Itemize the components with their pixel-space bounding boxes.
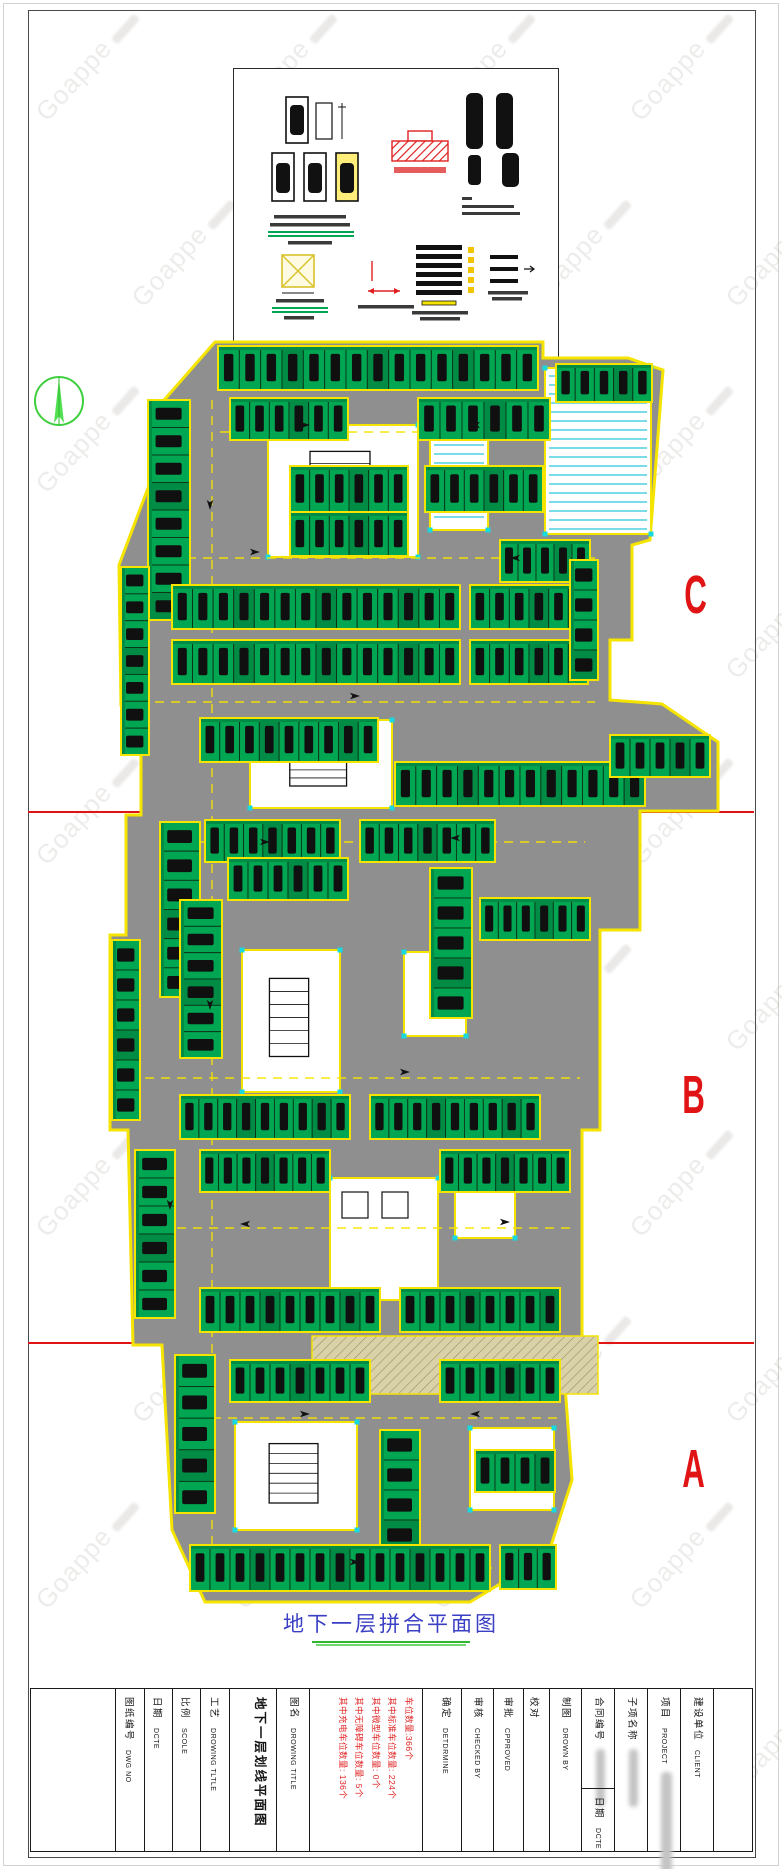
- parking-stall-strip: [205, 820, 340, 862]
- titleblock-col-empty: [713, 1689, 752, 1851]
- zone-label-a: A: [682, 1442, 705, 1496]
- label-cn: 日期: [151, 1697, 162, 1719]
- plan-room: [233, 1420, 360, 1533]
- parking-stall-strip: [475, 1450, 555, 1492]
- parking-stall-strip: [556, 364, 652, 402]
- sheet-title-underline-2: [316, 1644, 466, 1646]
- titleblock-col-text: 项目PROJECT: [646, 1689, 680, 1847]
- plan-room: [240, 948, 343, 1095]
- titleblock-col-text: 地下一层划线平面图: [228, 1689, 276, 1847]
- label-cn: 工艺: [208, 1697, 219, 1719]
- label-cn: 审批: [502, 1697, 513, 1719]
- label-cn: 制图: [560, 1697, 571, 1719]
- titleblock-col-text: 制图DROWN BY: [548, 1689, 581, 1847]
- parking-stall-strip: [570, 560, 598, 680]
- parking-stall-strip: [180, 900, 222, 1058]
- parking-stall-strip: [380, 1430, 420, 1550]
- label-en: DROWING TLTLE: [209, 1728, 216, 1791]
- label-en: DROWING TITLE: [289, 1728, 296, 1790]
- parking-stall-strip: [230, 1360, 370, 1402]
- parking-stall-strip: [500, 1545, 556, 1589]
- parking-stats-line: 其中微型车位数量: 0个: [367, 1697, 384, 1847]
- label-en: DWG NO: [124, 1750, 131, 1783]
- parking-stats-line: 其中充电车位数量: 136个: [334, 1697, 351, 1847]
- titleblock-col-text: 子项名称: [613, 1689, 647, 1847]
- label-en: DCTE: [152, 1728, 159, 1749]
- titleblock-col-text: 图纸编号DWG NO: [114, 1689, 144, 1847]
- label-en: DROWN BY: [561, 1728, 568, 1771]
- sheet-title-underline: [312, 1641, 470, 1643]
- parking-stall-strip: [430, 868, 472, 1018]
- parking-stall-strip: [440, 1360, 560, 1402]
- parking-stall-strip: [121, 567, 149, 755]
- parking-stall-strip: [400, 1288, 560, 1332]
- parking-stall-strip: [112, 940, 140, 1120]
- parking-stall-strip: [370, 1095, 540, 1139]
- parking-stall-strip: [218, 346, 538, 390]
- parking-stall-strip: [440, 1150, 570, 1192]
- parking-stall-strip: [180, 1095, 350, 1139]
- titleblock-col-text: 审批CPPROVED: [493, 1689, 523, 1847]
- titleblock-col-text: 车位数量:366个其中标准车位数量: 224个其中微型车位数量: 0个其中无障碍…: [304, 1689, 422, 1847]
- titleblock-col-text: 比例SCOLE: [172, 1689, 200, 1847]
- title-block: 图纸编号DWG NO日期DCTE比例SCOLE工艺DROWING TLTLE地下…: [30, 1688, 753, 1852]
- titleblock-col-制图: 制图DROWN BY: [549, 1689, 581, 1851]
- redacted-value: [629, 1749, 638, 1807]
- parking-stall-strip: [172, 585, 460, 629]
- parking-stall-strip: [135, 1150, 175, 1318]
- titleblock-subcell-text: 日期DCTE: [581, 1789, 614, 1847]
- titleblock-col-子项名称: 子项名称: [614, 1689, 647, 1851]
- parking-stall-strip: [200, 1288, 380, 1332]
- label-en: CPPROVED: [503, 1728, 510, 1771]
- parking-stall-strip: [290, 466, 408, 512]
- label-cn: 审核: [472, 1697, 483, 1719]
- titleblock-col-empty: [31, 1689, 115, 1851]
- label-cn: 地下一层划线平面图: [253, 1697, 267, 1828]
- titleblock-col-审核: 审核CHECKED BY: [461, 1689, 493, 1851]
- titleblock-col-text: 校对: [523, 1689, 549, 1847]
- titleblock-col-地下一层划线平面图: 地下一层划线平面图: [229, 1689, 276, 1851]
- sheet-title-text: 地下一层拼合平面图: [283, 1608, 499, 1640]
- titleblock-col-text: 日期DCTE: [144, 1689, 172, 1847]
- parking-stats-line: 车位数量:366个: [400, 1697, 417, 1847]
- titleblock-col-合同编号: 合同编号日期DCTE: [581, 1689, 613, 1851]
- parking-stats-line: 其中无障碍车位数量: 5个: [351, 1697, 368, 1847]
- titleblock-col-stats: 车位数量:366个其中标准车位数量: 224个其中微型车位数量: 0个其中无障碍…: [309, 1689, 422, 1851]
- parking-stall-strip: [175, 1355, 215, 1513]
- label-en: CHECKED BY: [473, 1728, 480, 1779]
- parking-floor-plan: [0, 0, 782, 1869]
- label-cn: 校对: [528, 1697, 539, 1719]
- titleblock-col-审批: 审批CPPROVED: [493, 1689, 523, 1851]
- parking-stall-strip: [200, 718, 378, 762]
- plan-room: [328, 1176, 441, 1303]
- parking-stall-strip: [418, 398, 550, 440]
- titleblock-col-图纸编号: 图纸编号DWG NO: [115, 1689, 145, 1851]
- parking-stall-strip: [190, 1545, 490, 1591]
- label-cn: 图名: [288, 1697, 299, 1719]
- label-en: SCOLE: [180, 1728, 187, 1754]
- parking-stall-strip: [230, 398, 348, 440]
- label-en: PROJECT: [660, 1728, 667, 1764]
- label-cn: 比例: [179, 1697, 190, 1719]
- label-cn: 图纸编号: [123, 1697, 134, 1741]
- titleblock-col-text: 确定DETDRMINE: [421, 1689, 461, 1847]
- parking-stats-line: 其中标准车位数量: 224个: [384, 1697, 401, 1847]
- label-en: DETDRMINE: [441, 1728, 448, 1774]
- titleblock-col-校对: 校对: [523, 1689, 549, 1851]
- titleblock-subcell: 日期DCTE: [582, 1788, 613, 1851]
- zone-label-b: B: [682, 1068, 705, 1122]
- label-cn: 子项名称: [626, 1697, 637, 1741]
- sheet-title: 地下一层拼合平面图: [0, 1608, 782, 1646]
- label-cn: 建设单位: [692, 1697, 703, 1741]
- parking-stall-strip: [290, 512, 408, 556]
- label-cn: 日期: [593, 1797, 604, 1819]
- parking-stall-strip: [228, 858, 348, 900]
- label-en: CLIENT: [693, 1750, 700, 1778]
- parking-stall-strip: [425, 466, 543, 512]
- titleblock-col-日期: 日期DCTE: [144, 1689, 172, 1851]
- redacted-value: [661, 1772, 672, 1869]
- titleblock-col-text: 审核CHECKED BY: [460, 1689, 493, 1847]
- titleblock-col-text: 建设单位CLIENT: [680, 1689, 713, 1847]
- drawing-sheet: GoappeGoappeGoappeGoappeGoappeGoappeGoap…: [0, 0, 782, 1869]
- titleblock-col-工艺: 工艺DROWING TLTLE: [200, 1689, 230, 1851]
- label-cn: 确定: [440, 1697, 451, 1719]
- label-cn: 项目: [659, 1697, 670, 1719]
- titleblock-col-text: 工艺DROWING TLTLE: [199, 1689, 229, 1847]
- titleblock-col-比例: 比例SCOLE: [172, 1689, 200, 1851]
- parking-stall-strip: [172, 640, 460, 684]
- parking-stall-strip: [360, 820, 495, 862]
- parking-stall-strip: [610, 735, 710, 777]
- parking-stall-strip: [395, 762, 645, 806]
- parking-stall-strip: [200, 1150, 330, 1192]
- label-cn: 合同编号: [593, 1697, 604, 1741]
- titleblock-col-建设单位: 建设单位CLIENT: [680, 1689, 712, 1851]
- parking-stall-strip: [480, 898, 590, 940]
- titleblock-col-text: 合同编号: [581, 1689, 614, 1785]
- titleblock-col-项目: 项目PROJECT: [647, 1689, 680, 1851]
- titleblock-col-确定: 确定DETDRMINE: [422, 1689, 461, 1851]
- label-en: DCTE: [594, 1828, 601, 1849]
- zone-label-c: C: [684, 568, 707, 622]
